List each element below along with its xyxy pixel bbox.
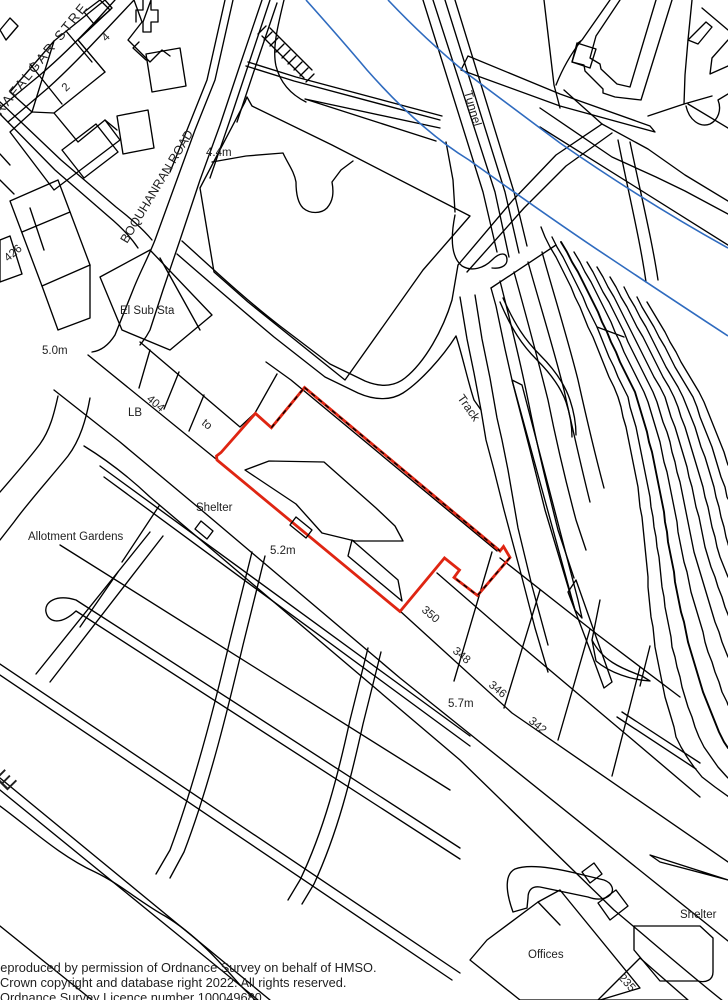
svg-text:TRAFALGAR STRE: TRAFALGAR STRE	[0, 0, 91, 126]
svg-text:E: E	[0, 765, 22, 797]
svg-text:5.2m: 5.2m	[270, 545, 296, 557]
svg-text:4.4m: 4.4m	[206, 147, 232, 159]
svg-text:348: 348	[450, 645, 472, 667]
svg-text:Ordnance Survey Licence number: Ordnance Survey Licence number 100049680	[0, 990, 262, 1000]
svg-text:235: 235	[616, 972, 638, 994]
svg-text:LB: LB	[128, 407, 142, 419]
svg-text:Allotment Gardens: Allotment Gardens	[28, 531, 123, 543]
svg-text:to: to	[199, 417, 214, 432]
svg-text:Shelter: Shelter	[196, 502, 233, 514]
svg-text:2: 2	[60, 81, 73, 94]
svg-text:Reproduced by permission of Or: Reproduced by permission of Ordnance Sur…	[0, 960, 377, 975]
svg-text:5.7m: 5.7m	[448, 698, 474, 710]
svg-text:5.0m: 5.0m	[42, 345, 68, 357]
svg-text:350: 350	[419, 604, 441, 626]
svg-text:404: 404	[144, 393, 167, 415]
svg-text:Tunnel: Tunnel	[461, 89, 484, 128]
svg-text:426: 426	[2, 243, 24, 265]
svg-text:Offices: Offices	[528, 949, 564, 961]
svg-text:346: 346	[486, 679, 508, 701]
svg-text:4: 4	[100, 31, 113, 44]
svg-text:Crown copyright and database r: Crown copyright and database right 2022.…	[0, 975, 346, 990]
svg-text:Shelter: Shelter	[680, 909, 717, 921]
svg-text:El Sub Sta: El Sub Sta	[120, 305, 175, 317]
svg-text:342: 342	[526, 715, 548, 737]
